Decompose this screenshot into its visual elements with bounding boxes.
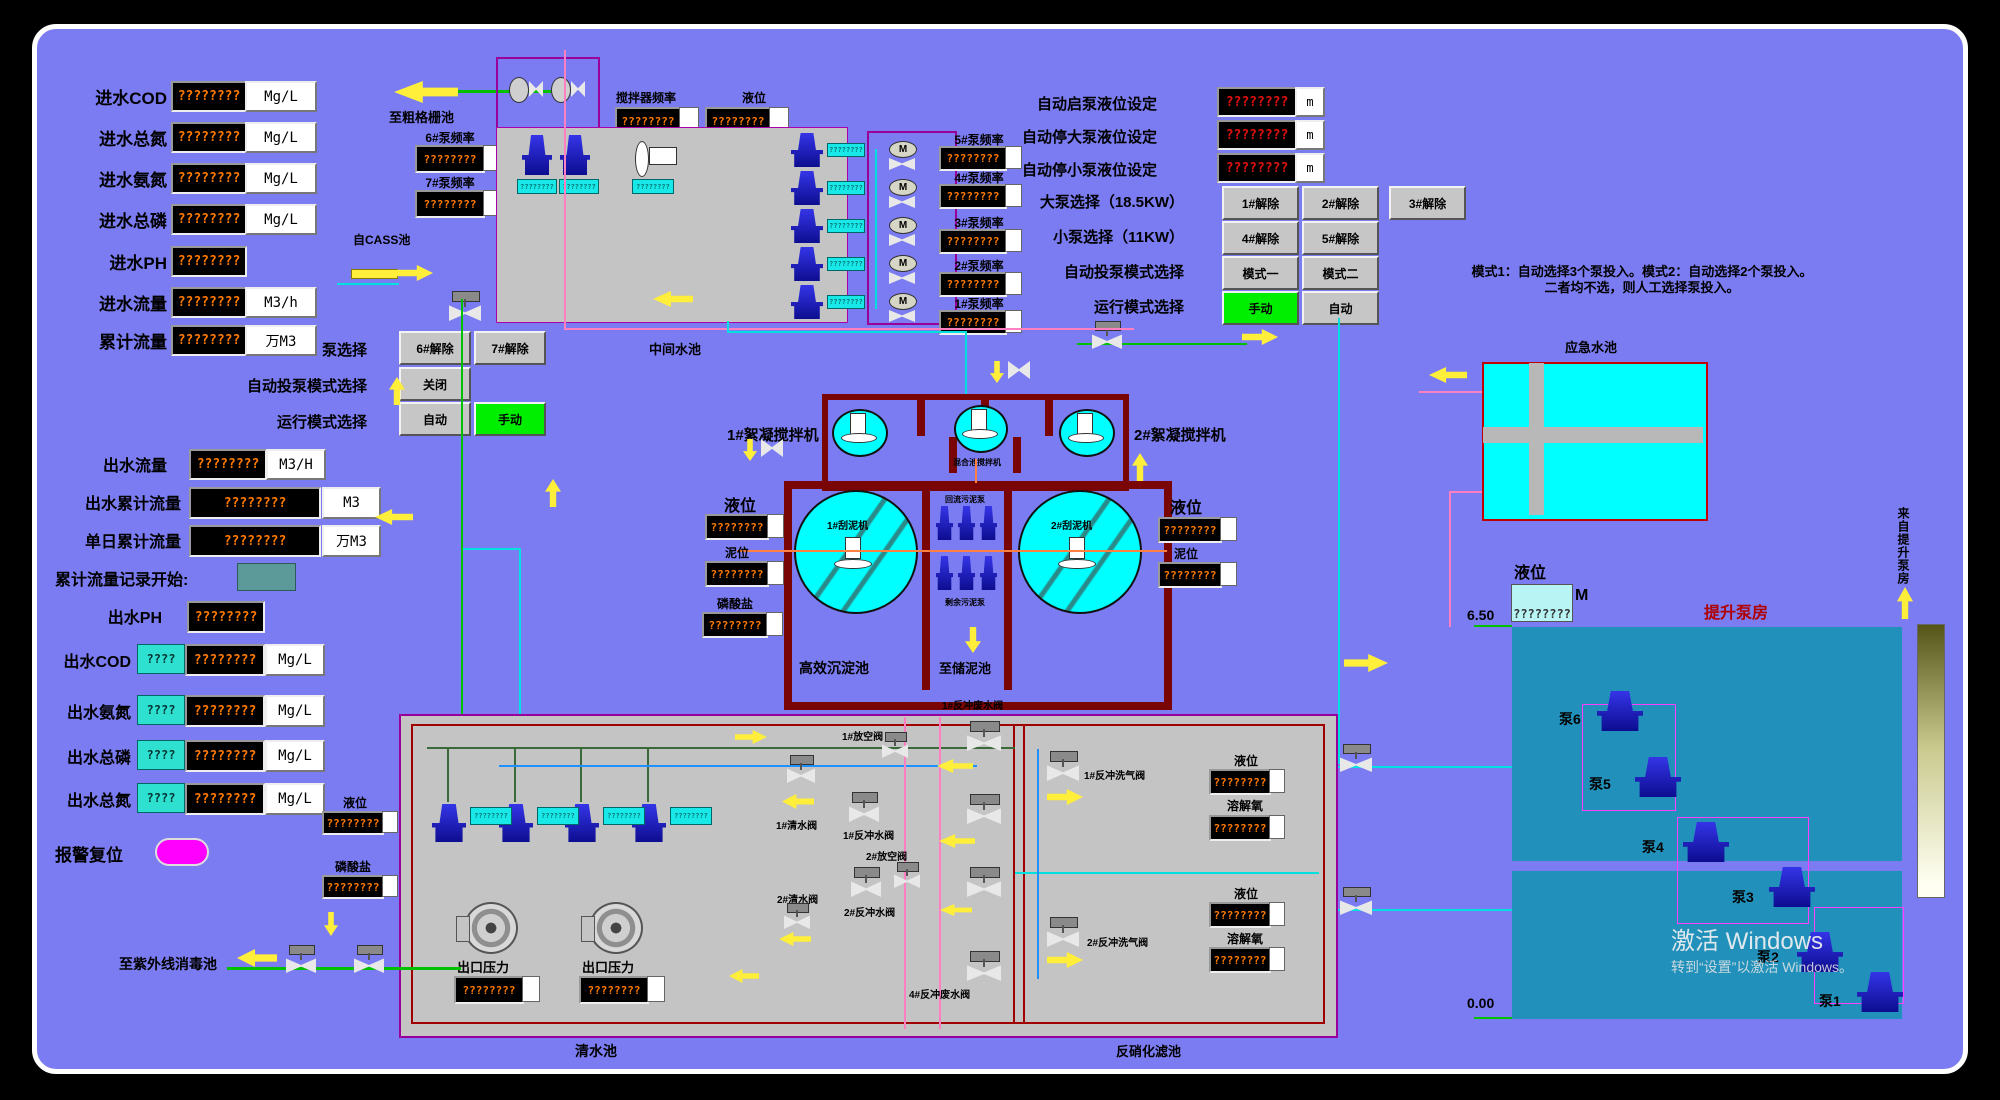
mixer-status-box: ???????? <box>632 179 674 194</box>
emergency-pool-label: 应急水池 <box>1565 337 1617 356</box>
from-cass-label: 自CASS池 <box>353 231 410 248</box>
flow-arrow-down <box>990 361 1004 383</box>
mixer-propeller-icon <box>1068 433 1104 443</box>
flow-arrow-right <box>1242 329 1278 345</box>
quality-unit: Mg/L <box>265 740 325 772</box>
flow-arrow-down <box>324 912 338 936</box>
pipe <box>939 717 941 1029</box>
backwash-valve1-label: 1#反冲水阀 <box>843 827 894 842</box>
flow-arrow-right <box>1344 654 1388 672</box>
inlet-unit: Mg/L <box>245 81 317 112</box>
center-mixer-label: 混合池搅拌机 <box>932 457 1022 468</box>
wall <box>917 400 925 436</box>
pipe <box>580 749 582 802</box>
inlet-unit: Mg/L <box>245 204 317 235</box>
lift-level-label: 液位 <box>1514 559 1546 583</box>
windows-watermark-title: 激活 Windows <box>1671 921 1823 956</box>
outlet-total-label: 出水累计流量 <box>55 490 181 514</box>
motor-valve-icon[interactable]: M <box>887 293 917 323</box>
outlet-daily-value: ???????? <box>189 525 321 557</box>
outlet-total-unit: M3 <box>322 487 381 519</box>
inlet-row-label: 进水氨氮 <box>55 166 167 191</box>
unit-box <box>1269 902 1285 926</box>
sed-mud-label-right: 泥位 <box>1174 545 1198 562</box>
outlet-daily-unit: 万M3 <box>322 525 381 557</box>
pump-status-box: ???????? <box>670 807 712 825</box>
small-pump5-button[interactable]: 5#解除 <box>1302 221 1379 255</box>
mixer-icon[interactable] <box>850 413 866 435</box>
inlet-value-display: ???????? <box>171 204 247 235</box>
hmi-panel: 进水COD ???????? Mg/L 进水总氮 ???????? Mg/L 进… <box>32 24 1968 1074</box>
backwash-waste-valve4-icon[interactable] <box>967 951 1001 981</box>
inlet-row-label: 进水总氮 <box>55 125 167 150</box>
quality-unit: Mg/L <box>265 644 325 676</box>
mode-note-line2: 二者均不选，则人工选择泵投入。 <box>1467 277 1817 296</box>
motor-valve-icon[interactable]: M <box>887 217 917 247</box>
mixer-propeller-icon <box>1058 559 1096 569</box>
quality-setpoint[interactable]: ???? <box>137 740 185 770</box>
sedimentation-name-label: 高效沉淀池 <box>799 658 869 678</box>
outlet-total-value: ???????? <box>189 487 321 519</box>
backwash-waste-valve1-label: 1#反冲废水阀 <box>942 697 1003 712</box>
unit-box <box>522 976 540 1002</box>
small-pump4-button[interactable]: 4#解除 <box>1222 221 1299 255</box>
pipe <box>1338 318 1340 764</box>
pipe <box>463 548 521 550</box>
lift-level-value: ???????? <box>1511 584 1573 622</box>
valve-icon[interactable] <box>1340 744 1372 772</box>
pump-select-label: 泵选择 <box>267 339 367 360</box>
pipe <box>447 749 449 802</box>
flow-arrow-left <box>1429 367 1467 383</box>
auto-stop-small-label: 自动停小泵液位设定 <box>977 159 1157 180</box>
to-coarse-screen-label: 至粗格栅池 <box>389 107 454 126</box>
grid-valve-icon[interactable] <box>967 794 1001 824</box>
pipe <box>337 283 399 285</box>
motor-valve-icon[interactable]: M <box>887 141 917 171</box>
pipe <box>1449 491 1482 493</box>
quality-setpoint[interactable]: ???? <box>137 695 185 725</box>
sed-level-value: ???????? <box>705 514 769 540</box>
inlet-value-display: ???????? <box>171 163 247 194</box>
inlet-value-display: ???????? <box>171 287 247 318</box>
denitrification-name-label: 反硝化滤池 <box>1116 1041 1181 1060</box>
windows-watermark-subtitle: 转到“设置”以激活 Windows。 <box>1671 957 1853 977</box>
inlet-value-display: ???????? <box>171 122 247 153</box>
mid-level-label: 液位 <box>729 89 779 106</box>
wall <box>1004 485 1012 690</box>
outlet-pressure-value: ???????? <box>454 976 524 1004</box>
inlet-row-label: 进水总磷 <box>55 207 167 232</box>
manual-button[interactable]: 手动 <box>474 402 546 436</box>
quality-label: 出水COD <box>43 648 131 672</box>
outlet-flow-value: ???????? <box>189 449 267 480</box>
pump-status-box: ???????? <box>827 181 865 195</box>
lift-station-label: 提升泵房 <box>1704 599 1768 623</box>
quality-value: ???????? <box>185 644 265 676</box>
unit-box <box>767 561 784 585</box>
unit-box <box>766 612 783 636</box>
mode1-button[interactable]: 模式一 <box>1222 256 1299 290</box>
quality-label: 出水总磷 <box>43 744 131 768</box>
unit-box <box>1269 815 1285 839</box>
pool-divider <box>1483 427 1703 443</box>
grid-valve-icon[interactable] <box>967 867 1001 897</box>
uv-valve-icon[interactable] <box>354 945 384 973</box>
pump4-label: 泵4 <box>1642 837 1664 857</box>
wall <box>1045 400 1053 436</box>
pipe <box>514 749 516 802</box>
uv-valve-icon[interactable] <box>286 945 316 973</box>
mixer-icon[interactable] <box>845 537 861 559</box>
unit-box <box>647 976 665 1002</box>
low-level-mark: 0.00 <box>1467 995 1494 1011</box>
air-scour-valve2-icon[interactable] <box>1047 917 1079 947</box>
run-manual-button[interactable]: 手动 <box>1222 291 1299 325</box>
scraper1-label: 1#刮泥机 <box>827 517 868 532</box>
pump-status-box: ???????? <box>517 179 557 194</box>
unit-box <box>1220 562 1237 586</box>
alarm-reset-button[interactable] <box>155 838 209 866</box>
surplus-sludge-pumps-label: 剩余污泥泵 <box>930 597 1000 608</box>
pump-status-box: ???????? <box>827 143 865 157</box>
quality-label: 出水氨氮 <box>43 699 131 723</box>
from-lift-station-vertical-label: 来自提升泵房 <box>1895 507 1912 585</box>
pipe <box>727 331 967 333</box>
level-unit: m <box>1295 87 1325 117</box>
inlet-unit: Mg/L <box>245 122 317 153</box>
mixer-icon[interactable] <box>971 409 987 431</box>
pipe <box>1474 1017 1512 1019</box>
outlet-pressure-value: ???????? <box>579 976 649 1004</box>
quality-unit: Mg/L <box>265 783 325 815</box>
level-unit: m <box>1295 120 1325 150</box>
flow-arrow-left <box>237 949 277 967</box>
vent-valve2-icon[interactable] <box>894 862 920 888</box>
valve-icon[interactable] <box>1340 887 1372 915</box>
scraper2-label: 2#刮泥机 <box>1051 517 1092 532</box>
dn-do-value: ???????? <box>1209 815 1271 841</box>
to-sludge-label: 至储泥池 <box>939 658 991 677</box>
record-start-box[interactable] <box>237 563 296 591</box>
pump6-freq-label: 6#泵频率 <box>415 129 485 146</box>
motor-valve-icon[interactable]: M <box>887 255 917 285</box>
inlet-unit: Mg/L <box>245 163 317 194</box>
lift-level-unit: M <box>1575 587 1588 605</box>
propeller-mixer-icon[interactable] <box>635 141 649 177</box>
inlet-value-display: ???????? <box>171 246 247 277</box>
flow-arrow-up <box>1132 453 1148 481</box>
unit-box <box>1220 517 1237 541</box>
to-uv-label: 至紫外线消毒池 <box>119 954 217 974</box>
unit-box <box>1269 947 1285 971</box>
dn-level-value: ???????? <box>1209 769 1271 795</box>
air-scour-valve1-label: 1#反冲洗气阀 <box>1084 767 1145 782</box>
pump-status-box: ???????? <box>470 807 512 825</box>
dn-level-value2: ???????? <box>1209 902 1271 928</box>
run-mode-select-label: 运行模式选择 <box>264 411 367 432</box>
unit-box <box>382 811 398 833</box>
sed-mud-label: 泥位 <box>725 544 749 561</box>
wall <box>922 485 930 690</box>
quality-value: ???????? <box>185 740 265 772</box>
dn-do-value2: ???????? <box>1209 947 1271 973</box>
valve-icon[interactable] <box>571 81 585 97</box>
pipe <box>227 967 461 970</box>
auto-mode-select-label: 自动投泵模式选择 <box>229 375 367 396</box>
cw-level-value: ???????? <box>322 811 384 835</box>
pump7-freq-label: 7#泵频率 <box>415 174 485 191</box>
pump-status-box: ???????? <box>603 807 645 825</box>
outlet-flow-unit: M3/H <box>266 449 326 480</box>
quality-label: 出水总氮 <box>43 787 131 811</box>
cass-valve-icon[interactable] <box>449 291 481 321</box>
pipe <box>975 459 977 483</box>
clear-valve2-icon[interactable] <box>784 903 810 929</box>
sed-mud-value-right: ???????? <box>1158 562 1222 588</box>
pump-status-box: ???????? <box>827 219 865 233</box>
dn-do-label2: 溶解氧 <box>1227 930 1263 947</box>
mixer-propeller-icon <box>962 429 998 439</box>
run-auto-button[interactable]: 自动 <box>1302 291 1379 325</box>
mixer-freq-label: 搅拌器频率 <box>607 89 685 106</box>
vent-valve2-label: 2#放空阀 <box>866 848 907 863</box>
mixer-icon[interactable] <box>1077 413 1093 435</box>
sed-level-value-right: ???????? <box>1158 517 1222 543</box>
blower-pump-icon[interactable] <box>589 902 643 954</box>
middle-tank-label: 中间水池 <box>649 339 701 358</box>
mixer-propeller-icon <box>841 433 877 443</box>
quality-unit: Mg/L <box>265 695 325 727</box>
pump7-freq-value: ???????? <box>415 190 485 218</box>
auto-stop-big-label: 自动停大泵液位设定 <box>977 126 1157 147</box>
sed-level-label-right: 液位 <box>1170 494 1202 518</box>
pump3-label: 泵3 <box>1732 887 1754 907</box>
backwash-waste-valve4-label: 4#反冲废水阀 <box>909 986 970 1001</box>
pump5-label: 泵5 <box>1589 774 1611 794</box>
quality-setpoint[interactable]: ???? <box>137 783 185 813</box>
flow-arrow-up <box>545 479 561 507</box>
pipe <box>564 328 1134 330</box>
quality-value: ???????? <box>185 695 265 727</box>
valve-icon[interactable] <box>529 81 543 97</box>
quality-value: ???????? <box>185 783 265 815</box>
mixer-propeller-icon <box>834 559 872 569</box>
air-scour-valve1-icon[interactable] <box>1047 751 1079 781</box>
outlet-pressure-label: 出口压力 <box>582 957 634 976</box>
outlet-ph-label: 出水PH <box>77 604 162 628</box>
pump-fan-icon[interactable] <box>509 77 529 103</box>
vent-valve1-label: 1#放空阀 <box>842 728 883 743</box>
outlet-flow-label: 出水流量 <box>55 452 167 476</box>
big-pump1-button[interactable]: 1#解除 <box>1222 186 1299 220</box>
clear-valve1-icon[interactable] <box>787 755 815 783</box>
air-scour-valve2-label: 2#反冲洗气阀 <box>1087 934 1148 949</box>
pump6-freq-value: ???????? <box>415 145 485 173</box>
unit-box <box>382 875 398 897</box>
auto-start-level-value[interactable]: ???????? <box>1217 87 1297 117</box>
pump7-release-button[interactable]: 7#解除 <box>474 331 546 365</box>
pump-status-box: ???????? <box>827 295 865 309</box>
big-pump3-button[interactable]: 3#解除 <box>1389 186 1466 220</box>
outlet-daily-label: 单日累计流量 <box>55 528 181 552</box>
cw-phosphate-label: 磷酸盐 <box>335 858 371 875</box>
alarm-reset-label: 报警复位 <box>55 841 151 866</box>
pipe <box>1449 491 1451 627</box>
pipe <box>965 331 967 394</box>
flow-arrow-up <box>1897 587 1913 619</box>
mixer-icon[interactable] <box>1069 537 1085 559</box>
valve-icon[interactable] <box>1008 361 1030 379</box>
auto-start-level-label: 自动启泵液位设定 <box>977 93 1157 114</box>
sed-level-label: 液位 <box>724 492 756 516</box>
blower-pump-icon[interactable] <box>464 902 518 954</box>
auto-stop-big-value[interactable]: ???????? <box>1217 120 1297 150</box>
unit-box <box>1269 769 1285 793</box>
flow-arrow-left <box>394 81 458 103</box>
backwash-valve2-icon[interactable] <box>851 867 881 897</box>
inlet-row-label: 进水流量 <box>55 290 167 315</box>
inlet-row-label: 进水PH <box>55 249 167 274</box>
pipe <box>647 749 649 802</box>
pipe <box>1037 749 1039 979</box>
motor-valve-icon[interactable]: M <box>887 179 917 209</box>
clear-valve1-label: 1#清水阀 <box>776 817 817 832</box>
dn-level-label2: 液位 <box>1234 885 1258 902</box>
pipe <box>519 548 521 714</box>
outlet-pressure-label: 出口压力 <box>457 957 509 976</box>
sed-mud-value: ???????? <box>705 561 769 587</box>
dn-level-label: 液位 <box>1234 752 1258 769</box>
pump1-label: 泵1 <box>1819 991 1841 1011</box>
inlet-row-label: 进水COD <box>55 84 167 109</box>
big-pump2-button[interactable]: 2#解除 <box>1302 186 1379 220</box>
backwash-valve1-icon[interactable] <box>849 792 879 822</box>
unit-box <box>767 514 784 538</box>
vent-valve1-icon[interactable] <box>882 732 908 758</box>
high-level-mark: 6.50 <box>1467 607 1494 623</box>
clear-water-tank-label: 清水池 <box>575 1041 617 1061</box>
mixer-motor-icon[interactable] <box>649 147 677 165</box>
pipe <box>564 50 566 330</box>
flow-arrow-right <box>397 265 433 281</box>
inlet-unit: M3/h <box>245 287 317 318</box>
backwash-waste-valve1-icon[interactable] <box>967 721 1001 751</box>
valve-icon[interactable] <box>1092 321 1122 349</box>
pipe <box>737 550 1167 552</box>
outlet-ph-value: ???????? <box>187 601 265 633</box>
pipe <box>1419 391 1482 393</box>
auto-mode-label: 自动投泵模式选择 <box>997 261 1184 282</box>
sed-phosphate-label: 磷酸盐 <box>717 595 753 612</box>
cw-level-label: 液位 <box>343 794 367 811</box>
run-mode-label: 运行模式选择 <box>997 296 1184 317</box>
dn-do-label: 溶解氧 <box>1227 797 1263 814</box>
pipe <box>1015 872 1319 874</box>
record-start-label: 累计流量记录开始: <box>55 566 233 590</box>
inlet-row-label: 累计流量 <box>55 328 167 353</box>
big-pump-select-label: 大泵选择（18.5KW） <box>997 191 1184 212</box>
backwash-valve2-label: 2#反冲水阀 <box>844 904 895 919</box>
pump-status-box: ???????? <box>827 257 865 271</box>
auto-stop-small-value[interactable]: ???????? <box>1217 153 1297 183</box>
pump-fan-icon[interactable] <box>551 77 571 103</box>
flocculation-mixer2-label: 2#絮凝搅拌机 <box>1134 424 1226 445</box>
valve-icon[interactable] <box>761 439 783 457</box>
quality-setpoint[interactable]: ???? <box>137 644 185 674</box>
small-pump-select-label: 小泵选择（11KW） <box>997 226 1184 247</box>
cw-phosphate-value: ???????? <box>322 875 384 899</box>
pump6-label: 泵6 <box>1559 709 1581 729</box>
mode2-button[interactable]: 模式二 <box>1302 256 1379 290</box>
pipe <box>351 269 398 279</box>
inlet-value-display: ???????? <box>171 325 247 356</box>
inlet-value-display: ???????? <box>171 81 247 112</box>
pipe <box>875 149 877 309</box>
level-unit: m <box>1295 153 1325 183</box>
sed-phosphate-value: ???????? <box>702 612 768 638</box>
pipe <box>1474 625 1512 627</box>
pump-status-box: ???????? <box>537 807 579 825</box>
level-gradient-bar <box>1917 624 1945 898</box>
return-sludge-pumps-label: 回流污泥泵 <box>930 494 1000 505</box>
